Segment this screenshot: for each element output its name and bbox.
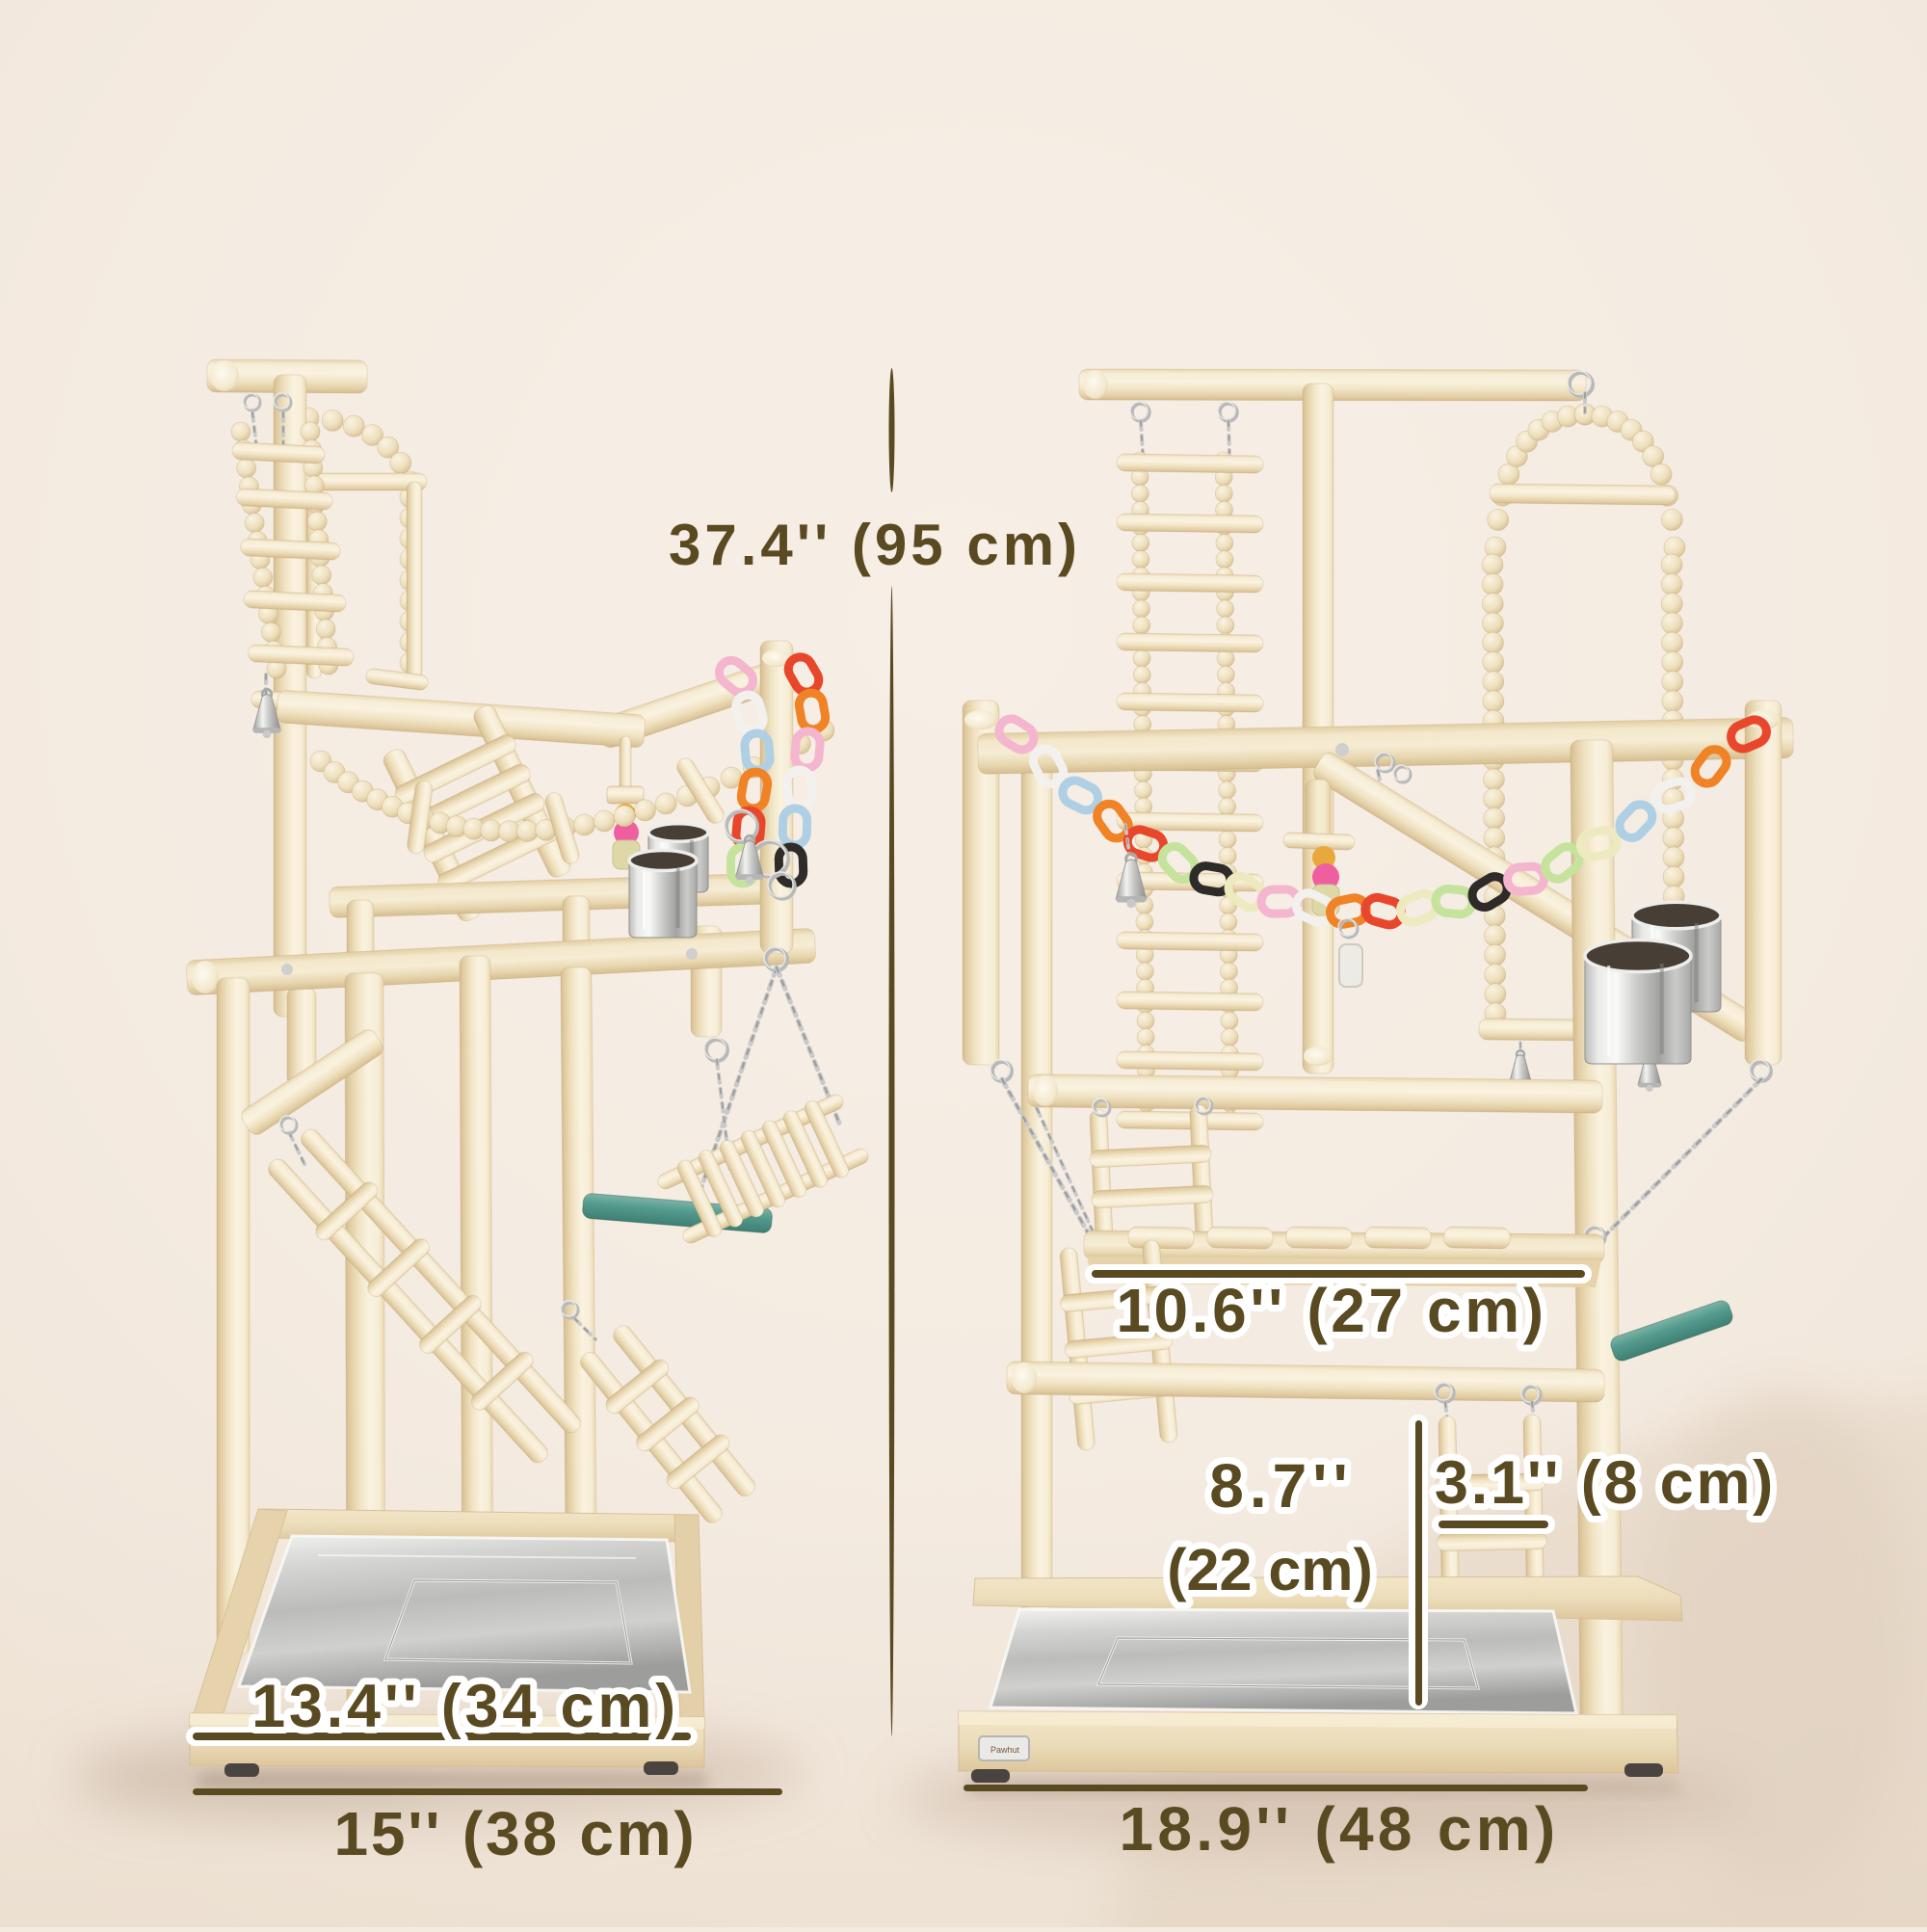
svg-text:Pawhut: Pawhut <box>990 1745 1020 1755</box>
svg-text:8.7'': 8.7'' <box>1209 1451 1353 1521</box>
svg-text:15'' (38 cm): 15'' (38 cm) <box>333 1799 697 1868</box>
svg-text:18.9'' (48 cm): 18.9'' (48 cm) <box>1119 1794 1559 1864</box>
svg-text:3.1'' (8 cm): 3.1'' (8 cm) <box>1435 1449 1776 1517</box>
svg-text:37.4'' (95 cm): 37.4'' (95 cm) <box>669 513 1081 577</box>
svg-text:13.4'' (34 cm): 13.4'' (34 cm) <box>251 1673 679 1740</box>
svg-text:(22 cm): (22 cm) <box>1167 1537 1373 1602</box>
svg-text:10.6'' (27 cm): 10.6'' (27 cm) <box>1116 1276 1546 1345</box>
